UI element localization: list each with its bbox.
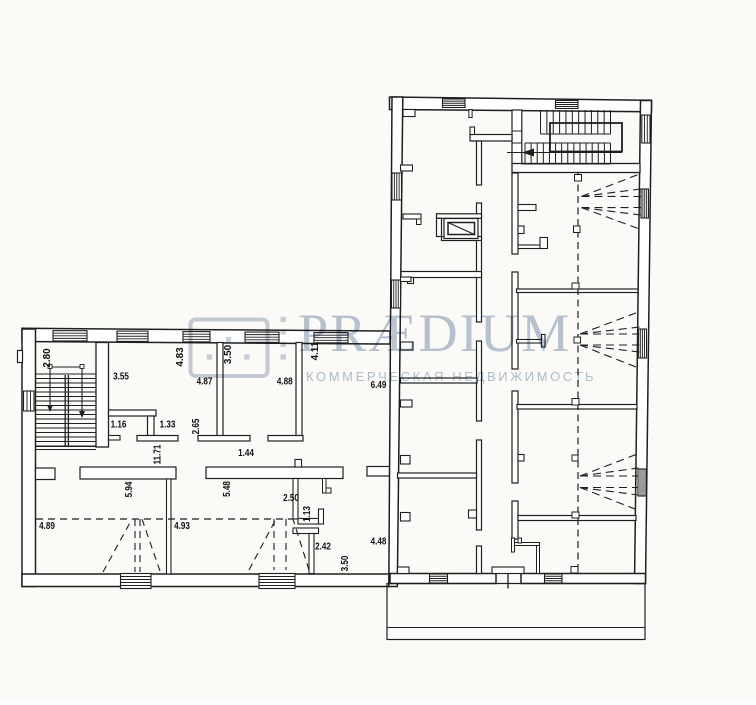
svg-text:КОММЕРЧЕСКАЯ НЕДВИЖИМОСТЬ: КОММЕРЧЕСКАЯ НЕДВИЖИМОСТЬ: [306, 369, 596, 384]
svg-text:4.83: 4.83: [175, 347, 186, 367]
svg-text:2.42: 2.42: [315, 540, 331, 551]
svg-text:2.50: 2.50: [283, 492, 299, 503]
svg-text:4.88: 4.88: [277, 375, 293, 386]
svg-text:1.13: 1.13: [301, 506, 312, 522]
svg-text:5.48: 5.48: [221, 481, 232, 497]
svg-text:5.94: 5.94: [123, 481, 134, 497]
svg-text:1.33: 1.33: [160, 418, 176, 429]
svg-text:3.55: 3.55: [113, 370, 129, 381]
svg-text:2.65: 2.65: [190, 419, 201, 435]
svg-text:1.44: 1.44: [238, 447, 254, 458]
svg-text:4.93: 4.93: [174, 520, 190, 531]
svg-text:4.48: 4.48: [371, 535, 387, 546]
svg-text:4.89: 4.89: [39, 520, 55, 531]
svg-text:PRÆDIUM: PRÆDIUM: [298, 303, 571, 363]
svg-text:1.16: 1.16: [111, 418, 127, 429]
svg-text:11.71: 11.71: [151, 445, 162, 465]
svg-text:3.50: 3.50: [339, 556, 350, 572]
svg-text:2.80: 2.80: [42, 348, 53, 368]
svg-text:3.50: 3.50: [223, 345, 234, 365]
